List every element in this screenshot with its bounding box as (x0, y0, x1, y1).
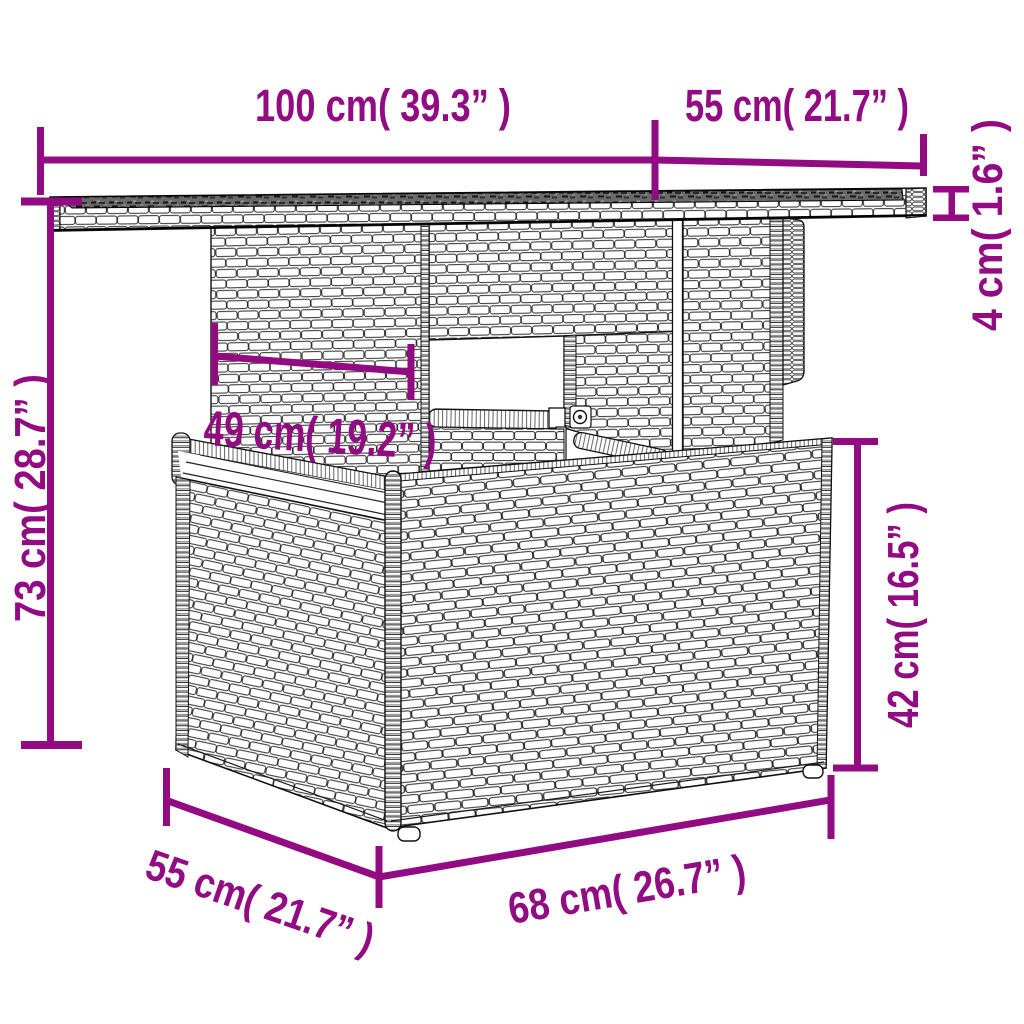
svg-text:42 cm( 16.5” ): 42 cm( 16.5” ) (879, 502, 928, 728)
svg-text:55 cm( 21.7” ): 55 cm( 21.7” ) (140, 841, 381, 964)
svg-text:55 cm( 21.7” ): 55 cm( 21.7” ) (685, 80, 909, 131)
svg-text:68 cm( 26.7” ): 68 cm( 26.7” ) (505, 846, 750, 934)
svg-text:100 cm( 39.3” ): 100 cm( 39.3” ) (255, 80, 511, 131)
svg-text:73 cm( 28.7” ): 73 cm( 28.7” ) (6, 374, 55, 622)
svg-text:4 cm( 1.6” ): 4 cm( 1.6” ) (964, 119, 1012, 331)
